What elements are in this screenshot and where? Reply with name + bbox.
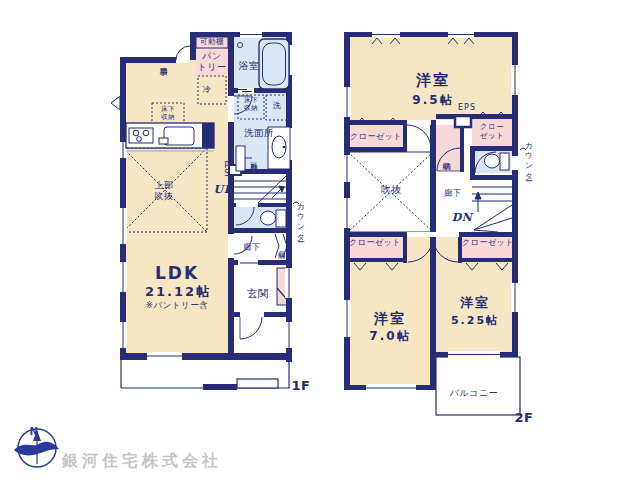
- label-storage-1f: 収納: [277, 245, 285, 247]
- label-hallway-1f: 廊下: [243, 242, 261, 252]
- label-stairs-down: DN: [452, 212, 473, 225]
- label-closet-bottom-left: クローゼット: [349, 238, 401, 247]
- label-ldk-name: LDK: [155, 263, 199, 283]
- company-name: 銀河住宅株式会社: [62, 451, 222, 472]
- label-eps: EPS: [458, 103, 476, 112]
- label-upper-void: 上部 吹抜: [155, 180, 174, 201]
- label-floor-2f: 2F: [515, 410, 534, 425]
- label-back-door: 勝手口: [158, 61, 167, 64]
- label-bathroom: 浴室: [239, 60, 260, 72]
- label-room95-area: 9.5帖: [412, 93, 453, 107]
- floor1-kitchen: [126, 123, 214, 151]
- label-counter-1f: カウンター: [295, 197, 304, 238]
- label-underfloor-storage-2: 床下 収納: [244, 97, 258, 112]
- label-washroom: 洗面所: [244, 127, 274, 138]
- label-ldk-note: ※パントリー含: [146, 300, 208, 310]
- label-room95-name: 洋室: [416, 72, 450, 90]
- label-pantry-shelf: 可動棚: [200, 38, 224, 47]
- label-washer: 洗: [273, 101, 282, 110]
- label-hallway-2f: 廊下: [444, 188, 462, 198]
- label-closet-top-left: クローゼット: [350, 132, 402, 141]
- label-refrigerator: 冷: [203, 85, 212, 94]
- label-underfloor-storage: 床下 収納: [161, 106, 175, 121]
- label-closet-top-right: クロー ゼット: [480, 123, 505, 141]
- label-movable-shelf: 可動棚: [249, 157, 257, 160]
- floor-plan-drawing: [0, 0, 640, 480]
- label-counter-2f: カウンター: [523, 136, 532, 177]
- label-storage-2f: 収納: [441, 155, 450, 157]
- label-room70-name: 洋室: [374, 310, 406, 327]
- label-entrance: 玄関: [247, 287, 269, 299]
- floor-plan-page: 可動棚 パン トリー 勝手口 浴室 冷 床下 収納 洗 床下 収納 洗面所 可動…: [0, 0, 640, 480]
- label-pantry: パン トリー: [198, 51, 227, 72]
- label-floor-1f: 1F: [292, 378, 311, 393]
- label-ldk-area: 21.12帖: [145, 284, 211, 299]
- label-void-2f: 吹抜: [381, 184, 402, 196]
- label-pipe-space: P S: [224, 162, 230, 179]
- floor2-stairs: [472, 187, 512, 232]
- label-room70-area: 7.0帖: [369, 329, 410, 343]
- label-stairs-up: UP: [214, 184, 233, 197]
- label-room525-area: 5.25帖: [451, 315, 499, 328]
- label-room525-name: 洋室: [460, 295, 490, 310]
- label-closet-bottom-right: クローゼット: [462, 238, 514, 247]
- label-compass-north: N: [30, 426, 39, 438]
- label-balcony: バルコニー: [450, 388, 498, 399]
- floor1-porch-outline: [121, 358, 290, 388]
